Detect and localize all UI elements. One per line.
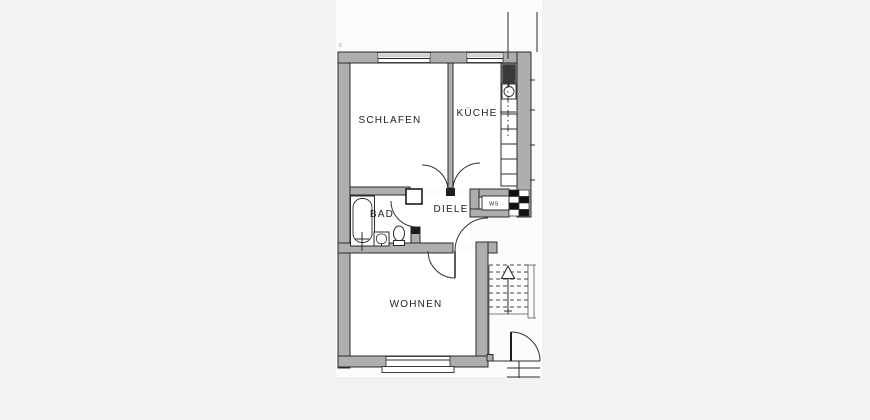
- kitchen-counter: [501, 63, 517, 186]
- diele-label: DIELE: [434, 204, 469, 215]
- window-schlafen: [378, 53, 430, 63]
- wall-schlafen-south: [350, 187, 410, 195]
- wall-divider-end-post: [446, 188, 455, 196]
- chimney: [509, 190, 529, 216]
- window-kueche: [467, 53, 503, 63]
- wall-closet-ws: WS: [482, 196, 509, 210]
- window-sill-outer: [382, 367, 454, 373]
- entrance-wall-stub: [487, 355, 493, 362]
- kueche-label: KÜCHE: [456, 107, 497, 119]
- bathtub: [351, 196, 375, 251]
- wall-divider-schlafen-kueche: [448, 63, 453, 188]
- washbasin: [374, 232, 389, 246]
- wall-west: [338, 52, 350, 368]
- bad-door-post-lower: [411, 227, 420, 234]
- wall-entry-corner-nub: [488, 242, 497, 253]
- schlafen-label: SCHLAFEN: [359, 115, 422, 126]
- corner-annotation-mark: c: [339, 43, 342, 49]
- stove: [502, 64, 516, 84]
- bad-corner-door-post: [406, 189, 422, 204]
- floor-plan-canvas: WS: [0, 0, 870, 420]
- toilet: [394, 226, 405, 246]
- ws-label: WS: [489, 202, 499, 208]
- room-kueche-floor: [453, 63, 501, 189]
- bad-label: BAD: [370, 209, 394, 220]
- window-wohnen: [382, 357, 454, 373]
- wall-wohnen-east: [476, 242, 488, 367]
- kitchen-sink: [502, 84, 516, 99]
- wohnen-label: WOHNEN: [390, 299, 443, 310]
- floor-plan-drawing: WS: [0, 0, 870, 420]
